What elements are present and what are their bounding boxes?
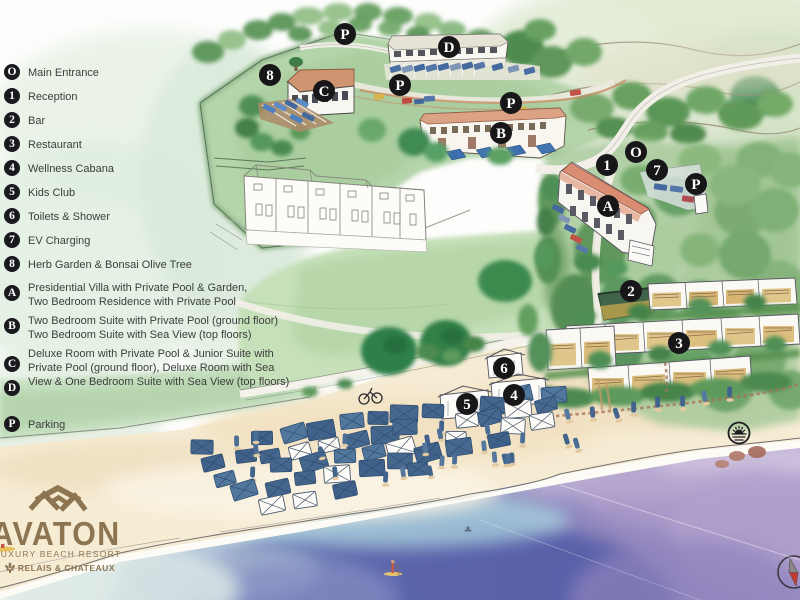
- svg-text:7: 7: [653, 163, 661, 179]
- svg-text:3: 3: [675, 336, 683, 352]
- svg-text:P: P: [691, 177, 700, 193]
- svg-text:6: 6: [500, 361, 508, 377]
- svg-text:A: A: [603, 199, 614, 215]
- svg-text:2: 2: [627, 284, 635, 300]
- svg-text:C: C: [319, 84, 330, 100]
- svg-text:P: P: [506, 96, 515, 112]
- svg-text:4: 4: [510, 388, 518, 404]
- svg-text:1: 1: [603, 158, 611, 174]
- svg-text:O: O: [630, 145, 642, 161]
- svg-text:P: P: [340, 27, 349, 43]
- svg-text:D: D: [444, 40, 455, 56]
- svg-text:5: 5: [463, 397, 471, 413]
- svg-text:8: 8: [266, 68, 274, 84]
- svg-text:B: B: [496, 126, 506, 142]
- svg-text:P: P: [395, 78, 404, 94]
